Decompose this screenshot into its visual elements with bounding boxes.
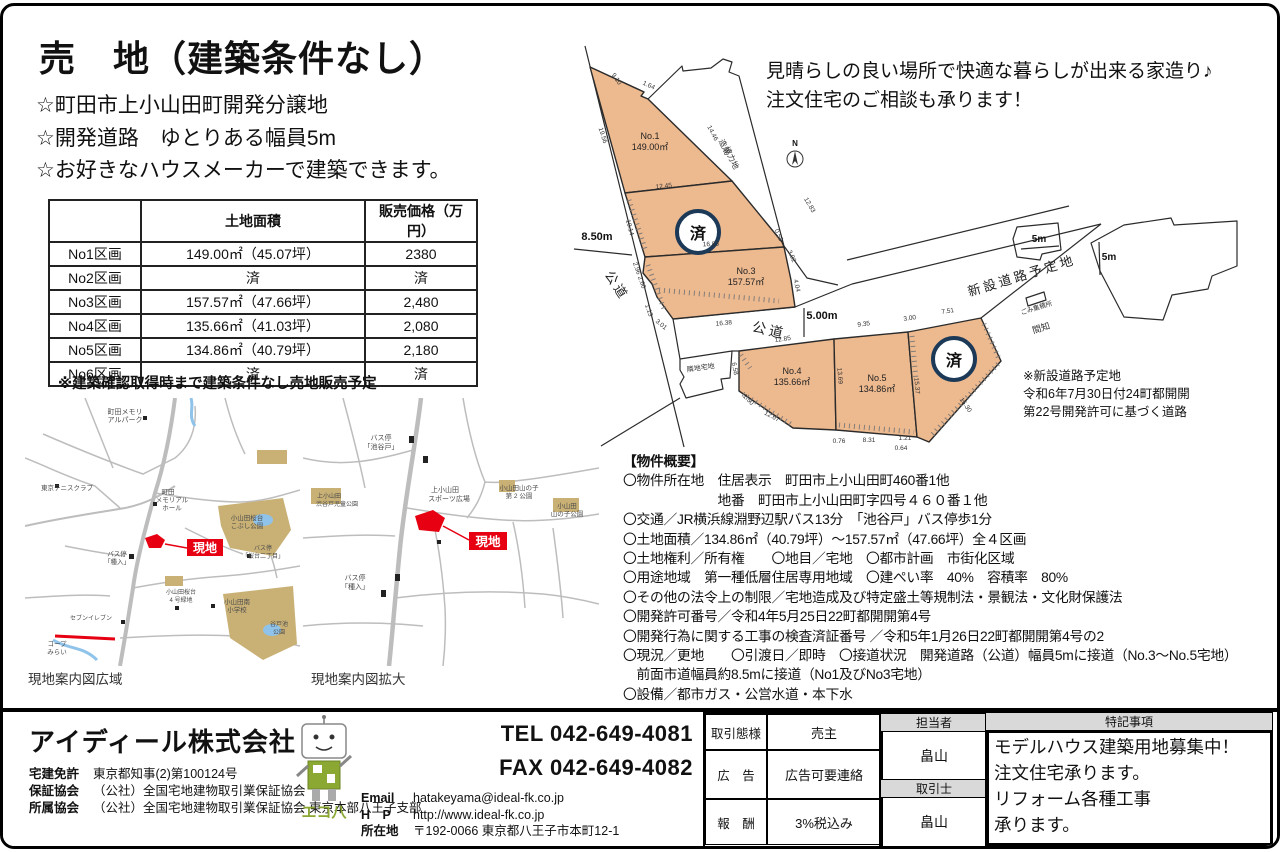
table-cell: 2,480 (365, 290, 477, 314)
plan-label: 5m (1102, 252, 1117, 263)
plan-label: 135.66㎡ (774, 377, 811, 387)
table-cell: No1区画 (49, 242, 141, 266)
deal-label: 取引態様 (705, 714, 767, 750)
area-map-wide: 現地 町田メモリアルパーク東京テニスクラブ町田メモリアルホール小山田桜台こぶし公… (25, 398, 300, 671)
agent-name: 畠山 (881, 798, 987, 845)
road-plan-note-line: 令和6年7月30日付24町都開開 (1023, 386, 1190, 401)
price-table-header: 土地面積販売価格（万円） (49, 200, 477, 242)
map-label: バス停 (345, 573, 366, 582)
license-label: 保証協会 (29, 783, 93, 800)
summary-line: 〇その他の法令上の制限／宅地造成及び特定盛土等規制法・景観法・文化財保護法 (623, 588, 1275, 607)
plan-label: 8.31 (863, 437, 876, 444)
price-col-header: 販売価格（万円） (365, 200, 477, 242)
plan-label: 16.38 (715, 319, 732, 327)
plan-label: 14.46 (705, 124, 719, 142)
map-label: 4 号緑地 (169, 596, 192, 604)
summary-line: 〇用途地域 第一種低層住居専用地域 〇建ぺい率 40% 容積率 80% (623, 568, 1275, 587)
feature-bullet: ☆町田市上小山田町開発分譲地 (36, 90, 450, 123)
plan-label: 16.83 (703, 241, 720, 249)
plan-label: 8.50m (581, 231, 612, 243)
map-label: 上小山田 (317, 492, 341, 500)
plan-label: 149.00㎡ (632, 142, 669, 152)
map-zoom-caption: 現地案内図拡大 (311, 668, 406, 688)
table-row: No5区画134.86㎡（40.79坪）2,180 (49, 338, 477, 362)
map-label: 「桜台二丁目」 (242, 552, 284, 560)
table-cell: No4区画 (49, 314, 141, 338)
site-marker: 現地 (145, 534, 223, 556)
price-col-header: 土地面積 (141, 200, 365, 242)
map-label: 東京テニスクラブ (41, 483, 94, 492)
table-note: ※建築確認取得時まで建築条件なし売地販売予定 (58, 372, 377, 393)
plan-label: 間知 (1031, 320, 1051, 336)
map-label: バス停 (254, 544, 272, 552)
map-label: 山の子公園 (551, 509, 584, 518)
plan-label: 6.58 (730, 362, 739, 376)
table-cell: 149.00㎡（45.07坪） (141, 242, 365, 266)
summary-line: 〇開発行為に関する工事の検査済証番号 ／令和5年1月26日22町都開開第4号の2 (623, 627, 1275, 646)
fax-number: FAX 042-649-4082 (403, 751, 693, 785)
compass-icon (787, 151, 803, 167)
plan-label: 0.76 (833, 438, 846, 445)
agent-header: 取引士 (881, 780, 987, 798)
map-label: コープ (47, 640, 67, 648)
deal-value: 広告可要連絡 (767, 750, 881, 799)
deal-value: 売主 (767, 714, 881, 750)
plan-label: ごみ集積所 (1019, 298, 1053, 316)
plan-label: 隣地宅地 (686, 361, 715, 374)
plan-label: No.3 (736, 266, 755, 276)
plan-label: 12.85 (774, 335, 791, 344)
contact-row: Emailhatakeyama@ideal-fk.co.jp (361, 790, 619, 807)
special-notes: 特記事項 モデルハウス建築用地募集中！注文住宅承ります。リフォーム各種工事承りま… (985, 712, 1273, 845)
mascot-logo: エコ八 (291, 714, 357, 826)
license-value: 東京都知事(2)第100124号 (93, 767, 238, 781)
map-label: スポーツ広場 (428, 494, 470, 503)
road-plan-note-line: ※新設道路予定地 (1023, 368, 1121, 383)
feature-bullet: ☆開発道路 ゆとりある幅員5m (36, 123, 450, 156)
page-title: 売 地（建築条件なし） (39, 30, 446, 82)
parcel-no3 (643, 247, 795, 319)
manager-name: 畠山 (881, 732, 987, 780)
deal-value: 3%税込み (767, 799, 881, 845)
feature-bullets: ☆町田市上小山田町開発分譲地☆開発道路 ゆとりある幅員5m☆お好きなハウスメーカ… (36, 90, 450, 188)
notes-line: モデルハウス建築用地募集中！ (994, 734, 1264, 760)
map-label: 小山田桜台 (231, 513, 264, 522)
summary-line: 〇交通／JR横浜線淵野辺駅バス13分 「池谷戸」バス停歩1分 (623, 510, 1275, 529)
plan-label: 7.51 (941, 307, 955, 316)
table-cell: 134.86㎡（40.79坪） (141, 338, 365, 362)
map-wide-caption: 現地案内図広域 (28, 668, 123, 688)
notes-line: 承ります。 (994, 812, 1264, 838)
map-label: 小山田山の子 (500, 483, 540, 492)
summary-line: 〇土地面積／134.86㎡（40.79坪）～157.57㎡（47.66坪）全４区… (623, 530, 1275, 549)
table-row: No3区画157.57㎡（47.66坪）2,480 (49, 290, 477, 314)
table-cell: No5区画 (49, 338, 141, 362)
flyer-page: 売 地（建築条件なし） ☆町田市上小山田町開発分譲地☆開発道路 ゆとりある幅員5… (0, 3, 1280, 849)
summary-line: 前面市道幅員約8.5mに接道（No1及びNo3宅地） (623, 665, 1275, 684)
plan-label: 新設道路予定地 (966, 252, 1078, 299)
mascot-name: エコ八 (301, 804, 347, 821)
table-cell: 2380 (365, 242, 477, 266)
plan-label: 9.35 (857, 320, 871, 329)
sold-badge-lower: 済 (933, 338, 975, 380)
contact-value: http://www.ideal-fk.co.jp (413, 808, 544, 822)
plan-label: 1.21 (899, 435, 912, 442)
plan-label: N (792, 139, 798, 148)
table-cell: 済 (141, 266, 365, 290)
footer: アイディール株式会社 宅建免許東京都知事(2)第100124号保証協会（公社）全… (3, 708, 1277, 846)
map-label: 小山田南 (224, 597, 251, 606)
map-label: 渋谷戸児童公園 (316, 500, 358, 508)
map-label: 小山田 (557, 501, 577, 510)
notes-body: モデルハウス建築用地募集中！注文住宅承ります。リフォーム各種工事承ります。 (985, 731, 1273, 846)
plan-label: 2.60 (636, 275, 647, 290)
plan-label: No.5 (867, 373, 886, 383)
map-label: 「種入」 (104, 558, 130, 566)
area-map-zoomed: 現地 バス停「池谷戸」上小山田スポーツ広場小山田山の子第 2 公園小山田山の子公… (303, 398, 599, 671)
tel-fax: TEL 042-649-4081 FAX 042-649-4082 (403, 717, 693, 785)
table-row: No2区画済済 (49, 266, 477, 290)
price-table: 土地面積販売価格（万円） No1区画149.00㎡（45.07坪）2380No2… (48, 199, 478, 387)
plan-label: 1.13 (643, 303, 654, 318)
map-label: 「種入」 (341, 583, 369, 591)
map-label: 谷戸池 (270, 620, 288, 628)
license-label: 所属協会 (29, 800, 93, 817)
plan-label: 157.57㎡ (728, 277, 765, 287)
map-roads (303, 398, 599, 666)
map-label: 上小山田 (431, 485, 459, 494)
contact-value: 〒192-0066 東京都八王子市本町12-1 (413, 824, 619, 838)
map-zoom-labels: バス停「池谷戸」上小山田スポーツ広場小山田山の子第 2 公園小山田山の子公園上小… (316, 433, 583, 591)
plot-plan: 済 済 ※新設道路予定地令和6年7月30日付24町都開開第22号開発許可に基づく… (571, 28, 1280, 456)
notes-header: 特記事項 (985, 712, 1273, 731)
map-label: バス停 (107, 549, 127, 558)
license-label: 宅建免許 (29, 766, 93, 783)
table-row: No4区画135.66㎡（41.03坪）2,080 (49, 314, 477, 338)
plan-label: 5.00m (806, 310, 837, 322)
map-label: メモリアル (156, 496, 189, 504)
license-row: 宅建免許東京都知事(2)第100124号 (29, 766, 421, 783)
contact-label: 所在地 (361, 823, 413, 840)
price-col-header (49, 200, 141, 242)
contact-row: 所在地〒192-0066 東京都八王子市本町12-1 (361, 823, 619, 840)
road-plan-note: ※新設道路予定地令和6年7月30日付24町都開開第22号開発許可に基づく道路 (1023, 368, 1190, 419)
plan-label: 12.83 (802, 196, 816, 214)
table-row: No1区画149.00㎡（45.07坪）2380 (49, 242, 477, 266)
plan-label: 3.00 (903, 314, 917, 323)
feature-bullet: ☆お好きなハウスメーカーで建築できます。 (36, 155, 450, 188)
tel-number: TEL 042-649-4081 (403, 717, 693, 751)
deal-label: 報 酬 (705, 799, 767, 845)
plan-label: 13.69 (835, 367, 843, 384)
map-label: アルパーク (108, 416, 143, 424)
contact-label: Email (361, 790, 413, 807)
map-label: 公園 (273, 629, 285, 636)
staff-table: 担当者 畠山 取引士 畠山 (879, 712, 989, 849)
map-label: 町田メモリ (108, 408, 143, 416)
site-label: 現地 (475, 534, 501, 549)
notes-line: 注文住宅承ります。 (994, 760, 1264, 786)
contact-rows: Emailhatakeyama@ideal-fk.co.jpH Phttp://… (361, 790, 619, 840)
map-label: ホール (162, 504, 182, 512)
deal-label: 広 告 (705, 750, 767, 799)
summary-title: 【物件概要】 (623, 452, 1275, 471)
table-cell: 済 (365, 266, 477, 290)
plan-label: 2.96 (631, 261, 642, 276)
sold-text: 済 (946, 351, 963, 370)
summary-line: 〇現況／更地 〇引渡日／即時 〇接道状況 開発道路（公道）幅員5mに接道（No.… (623, 646, 1275, 665)
summary-line: 地番 町田市上小山田町字四号４６０番１他 (623, 491, 1275, 510)
property-summary: 【物件概要】 〇物件所在地 住居表示 町田市上小山田町460番1他 地番 町田市… (623, 452, 1275, 704)
map-label: セブンイレブン (70, 614, 112, 622)
map-label: 「池谷戸」 (364, 442, 399, 451)
contact-value: hatakeyama@ideal-fk.co.jp (413, 791, 564, 805)
map-label: バス停 (371, 433, 392, 442)
map-label: みらい (47, 648, 67, 656)
table-cell: 2,080 (365, 314, 477, 338)
site-label: 現地 (193, 540, 217, 555)
plan-label: No.1 (640, 131, 659, 141)
company-name: アイディール株式会社 (29, 722, 296, 759)
table-cell: No3区画 (49, 290, 141, 314)
plan-label: No.4 (782, 366, 801, 376)
plan-label: 1.64 (641, 80, 656, 92)
table-cell: 157.57㎡（47.66坪） (141, 290, 365, 314)
road-plan-note-line: 第22号開発許可に基づく道路 (1023, 404, 1187, 419)
contact-row: H Phttp://www.ideal-fk.co.jp (361, 807, 619, 824)
map-label: 小山田桜台 (166, 588, 196, 596)
plan-label: 公道 (602, 268, 632, 303)
license-value: （公社）全国宅地建物取引業保証協会 (93, 784, 306, 798)
plan-label: 5m (1032, 234, 1047, 245)
plan-label: 3.01 (654, 318, 668, 332)
summary-line: 〇土地権利／所有権 〇地目／宅地 〇都市計画 市街化区域 (623, 549, 1275, 568)
deal-table: 取引態様売主広 告広告可要連絡報 酬3%税込み (703, 712, 883, 849)
plan-label: 134.86㎡ (859, 384, 896, 394)
notes-line: リフォーム各種工事 (994, 786, 1264, 812)
plan-label: 協力地 (722, 145, 741, 171)
map-label: 町田 (162, 488, 175, 496)
table-cell: 済 (365, 362, 477, 386)
sold-text: 済 (690, 224, 707, 243)
contact-label: H P (361, 807, 413, 824)
table-cell: 2,180 (365, 338, 477, 362)
plan-label: 0.64 (895, 445, 908, 452)
plan-label: 15.37 (912, 377, 920, 394)
manager-header: 担当者 (881, 714, 987, 732)
summary-line: 〇物件所在地 住居表示 町田市上小山田町460番1他 (623, 471, 1275, 490)
map-label: 小学校 (227, 605, 247, 614)
summary-line: 〇開発許可番号／令和4年5月25日22町都開開第4号 (623, 607, 1275, 626)
table-cell: No2区画 (49, 266, 141, 290)
map-label: 第 2 公園 (506, 491, 533, 500)
map-label: こぶし公園 (231, 522, 264, 530)
summary-line: 〇設備／都市ガス・公営水道・本下水 (623, 685, 1275, 704)
table-cell: 135.66㎡（41.03坪） (141, 314, 365, 338)
